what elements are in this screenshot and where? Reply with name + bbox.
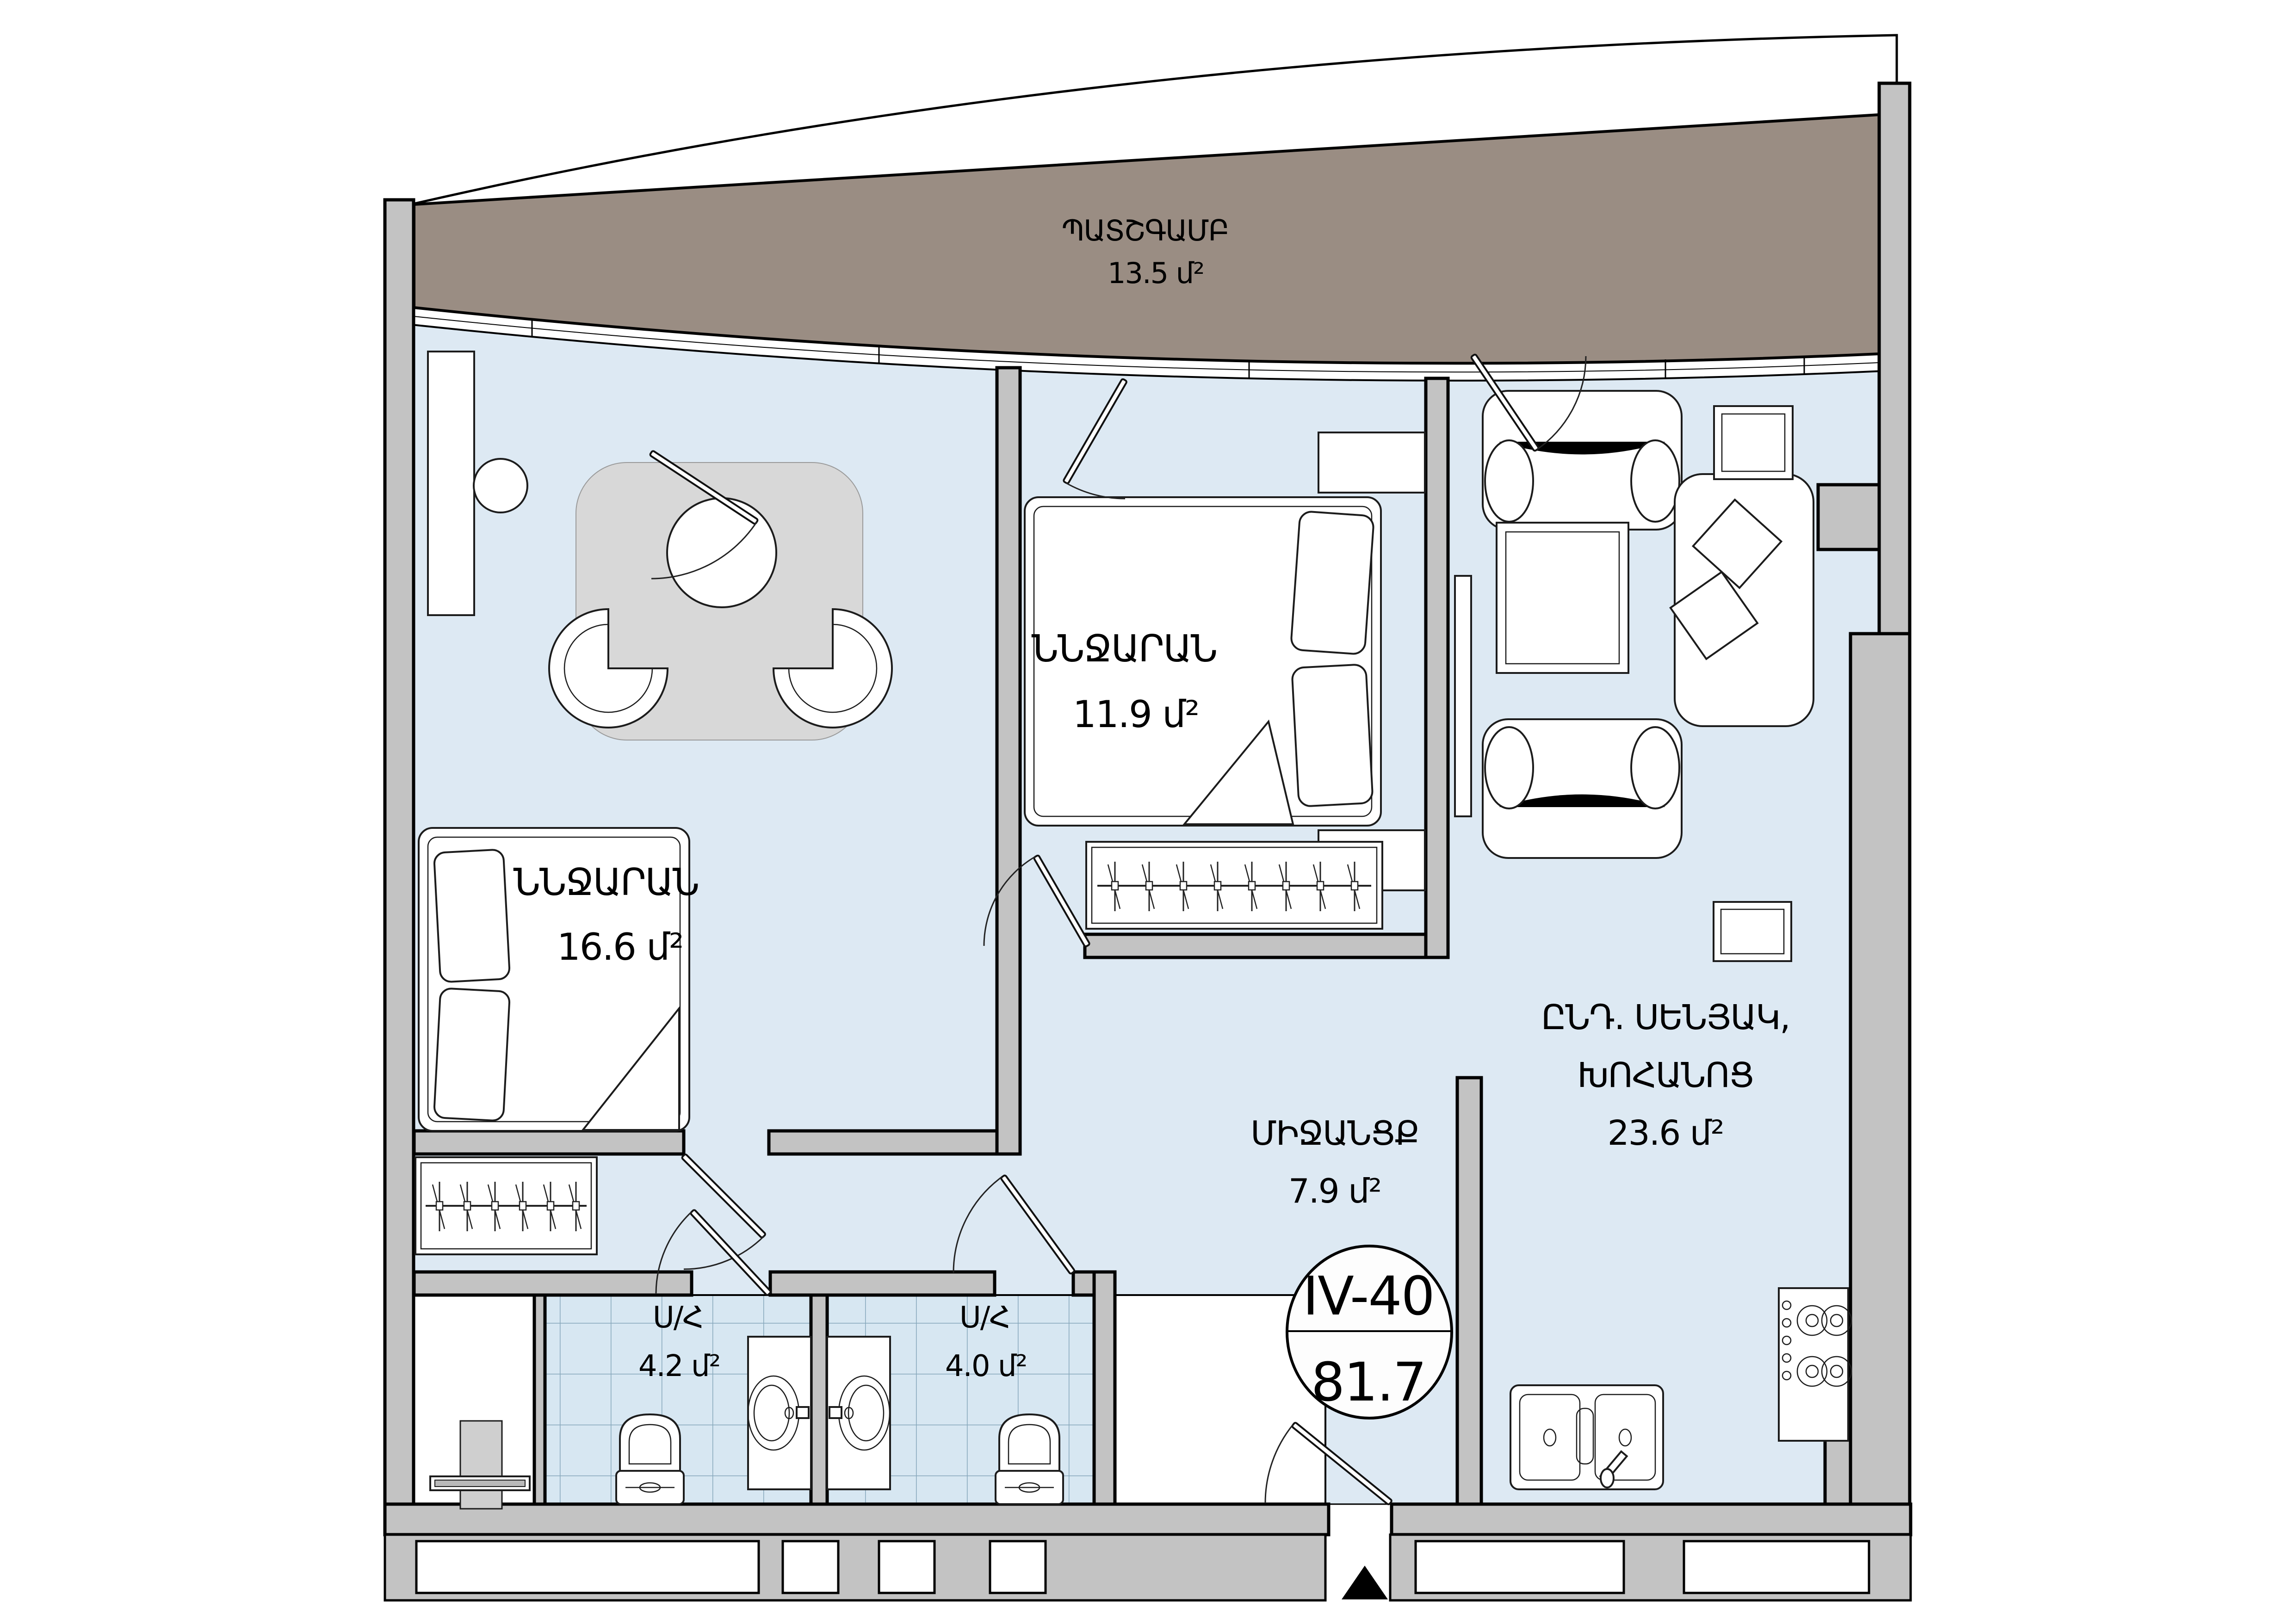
wall-bath-north-b bbox=[770, 1272, 995, 1295]
lower-level-outline bbox=[385, 1535, 1911, 1600]
bath1-name-label: Ս/Հ bbox=[653, 1301, 703, 1335]
wall-bedroom1-south-b bbox=[769, 1131, 997, 1154]
bath1-sink-icon bbox=[748, 1337, 811, 1489]
wall-kitchen-partition bbox=[1457, 1078, 1481, 1504]
wall-bedroom2-east bbox=[1426, 378, 1448, 957]
round-table-icon bbox=[667, 498, 776, 607]
wall-bath-north-a bbox=[414, 1272, 692, 1295]
bedroom2-area-label: 11.9 մ² bbox=[1073, 693, 1199, 736]
bedroom1-area-label: 16.6 մ² bbox=[557, 926, 683, 969]
pillow-icon bbox=[434, 849, 510, 982]
pillow-icon bbox=[1291, 511, 1374, 654]
nightstand-icon bbox=[1318, 432, 1425, 493]
kitchen-sink-icon bbox=[1510, 1385, 1663, 1489]
wall-left bbox=[385, 200, 414, 1535]
dresser-icon bbox=[428, 352, 474, 615]
living-name-label-2: ԽՈՀԱՆՈՑ bbox=[1577, 1055, 1753, 1095]
wall-bottom-left bbox=[385, 1504, 1329, 1535]
stove-icon bbox=[1779, 1288, 1851, 1441]
wall-utility-divider bbox=[534, 1295, 545, 1504]
balcony-area-label: 13.5 մ² bbox=[1108, 256, 1204, 290]
wall-kitchen-step bbox=[1825, 1438, 1850, 1504]
hallway-name-label: ՄԻՋԱՆՑՔ bbox=[1250, 1114, 1419, 1153]
wall-bottom-right bbox=[1392, 1504, 1911, 1535]
stool-icon bbox=[474, 459, 527, 512]
unit-badge: IV-40 81.7 bbox=[1287, 1246, 1452, 1418]
hallway-area-label: 7.9 մ² bbox=[1288, 1172, 1381, 1210]
armchair-bottom-icon bbox=[1483, 719, 1682, 858]
balcony-zone bbox=[385, 35, 1897, 381]
corridor-wardrobe-icon bbox=[415, 1157, 597, 1254]
wall-right-notch bbox=[1818, 485, 1879, 549]
faucet-icon bbox=[829, 1407, 842, 1418]
bedroom2-name-label: ՆՆՋԱՐԱՆ bbox=[1032, 627, 1217, 670]
bath2-area-label: 4.0 մ² bbox=[945, 1349, 1027, 1383]
bedroom2-wardrobe-icon bbox=[1086, 842, 1382, 929]
side-table-top-icon bbox=[1714, 406, 1793, 479]
floor-plan-drawing: ՊԱՏՇԳԱՄԲ 13.5 մ² ՆՆՋԱՐԱՆ 16.6 մ² ՆՆՋԱՐԱՆ… bbox=[0, 0, 2296, 1623]
unit-area-label: 81.7 bbox=[1311, 1351, 1426, 1413]
bath1-area-label: 4.2 մ² bbox=[638, 1349, 720, 1383]
pillow-icon bbox=[434, 988, 510, 1121]
pillow-icon bbox=[1292, 664, 1373, 807]
wall-bedroom2-south bbox=[1085, 934, 1448, 957]
wall-bath-divider bbox=[811, 1295, 827, 1504]
wall-right-lower bbox=[1850, 634, 1910, 1504]
bedroom1-name-label: ՆՆՋԱՐԱՆ bbox=[514, 861, 699, 904]
bath2-name-label: Ս/Հ bbox=[959, 1301, 1009, 1335]
balcony-name-label: ՊԱՏՇԳԱՄԲ bbox=[1062, 214, 1228, 247]
coffee-table-icon bbox=[1497, 523, 1628, 673]
living-area-label: 23.6 մ² bbox=[1608, 1113, 1724, 1153]
floor-plan-page: ՊԱՏՇԳԱՄԲ 13.5 մ² ՆՆՋԱՐԱՆ 16.6 մ² ՆՆՋԱՐԱՆ… bbox=[0, 0, 2296, 1623]
bath1-toilet-icon bbox=[616, 1414, 684, 1504]
wall-bedroom1-south-a bbox=[414, 1131, 684, 1154]
living-name-label-1: ԸՆԴ. ՍԵՆՅԱԿ, bbox=[1541, 998, 1789, 1037]
side-table-bottom-icon bbox=[1714, 902, 1791, 961]
wall-right-upper bbox=[1879, 83, 1910, 634]
wall-bath2-east bbox=[1094, 1272, 1115, 1504]
faucet-icon bbox=[797, 1407, 809, 1418]
tv-icon bbox=[1455, 576, 1471, 816]
unit-number-label: IV-40 bbox=[1303, 1265, 1434, 1327]
entrance-arrow-icon bbox=[1342, 1566, 1388, 1599]
bath2-sink-icon bbox=[827, 1337, 890, 1489]
sofa-icon bbox=[1671, 474, 1813, 726]
wall-bedroom1-east bbox=[997, 368, 1020, 1154]
bath2-toilet-icon bbox=[996, 1414, 1063, 1504]
